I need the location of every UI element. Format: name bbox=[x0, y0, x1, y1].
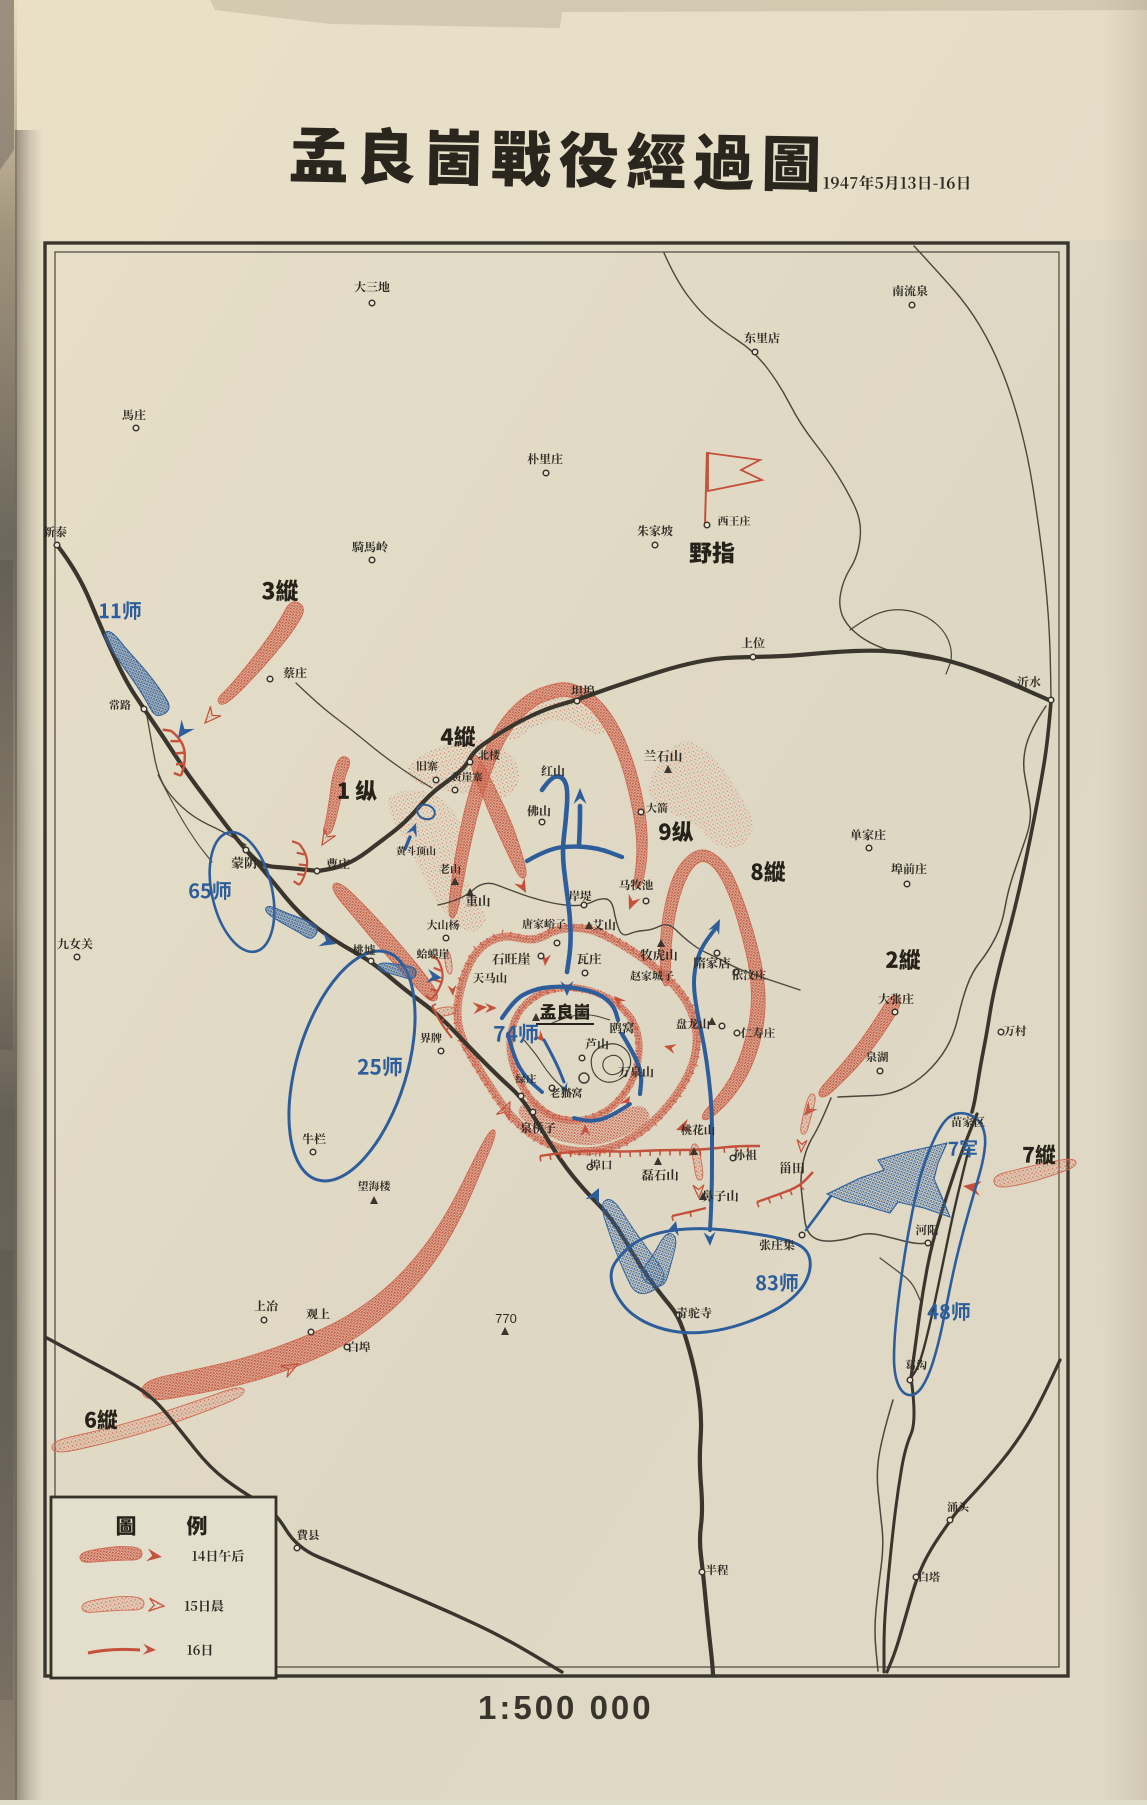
svg-text:1:500 000: 1:500 000 bbox=[478, 1689, 654, 1726]
svg-text:770: 770 bbox=[495, 1311, 517, 1326]
